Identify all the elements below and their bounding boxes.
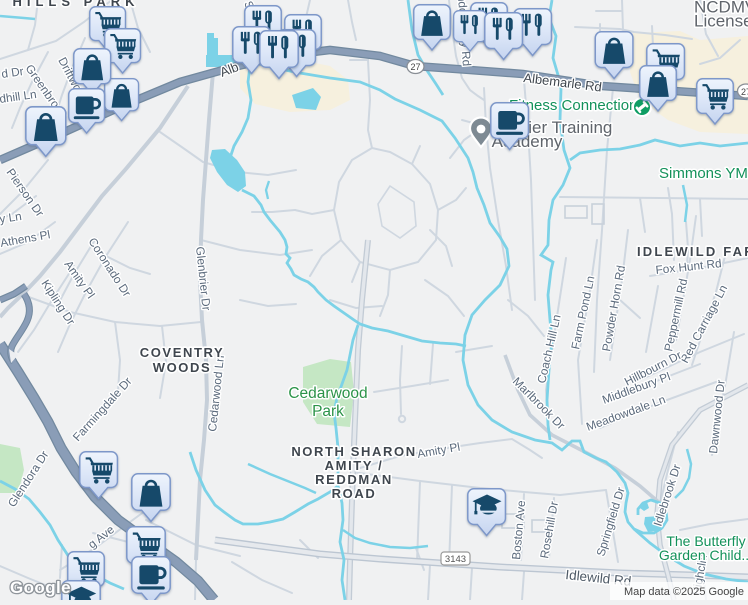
svg-text:27: 27 — [741, 87, 748, 97]
svg-text:REDDMAN: REDDMAN — [315, 472, 393, 487]
svg-text:IDLEWILD FARMS: IDLEWILD FARMS — [637, 244, 748, 259]
svg-text:License o: License o — [694, 12, 748, 31]
svg-text:Simmons YMCA: Simmons YMCA — [659, 165, 748, 182]
svg-text:AMITY /: AMITY / — [325, 458, 384, 473]
svg-text:COVENTRY: COVENTRY — [140, 345, 225, 360]
svg-text:WOODS: WOODS — [153, 360, 212, 375]
svg-text:ROAD: ROAD — [332, 486, 377, 501]
svg-text:Google: Google — [10, 578, 71, 597]
svg-text:NORTH SHARON: NORTH SHARON — [291, 444, 416, 459]
svg-text:3143: 3143 — [445, 554, 466, 565]
svg-text:Garden Child...: Garden Child... — [659, 547, 748, 563]
svg-text:Cedarwood: Cedarwood — [288, 385, 367, 402]
svg-text:Park: Park — [312, 403, 344, 420]
svg-text:27: 27 — [410, 62, 420, 72]
svg-text:Map data ©2025 Google: Map data ©2025 Google — [624, 586, 744, 598]
